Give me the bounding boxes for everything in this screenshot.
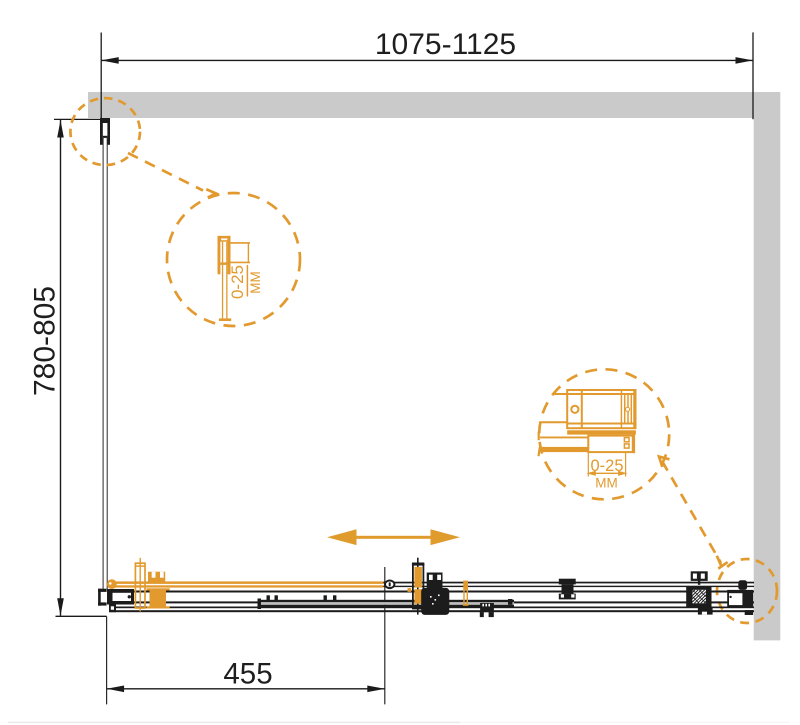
svg-text:MM: MM	[248, 271, 263, 294]
svg-text:780-805: 780-805	[29, 286, 62, 396]
svg-text:0-25: 0-25	[590, 457, 623, 475]
svg-text:455: 455	[223, 658, 272, 691]
svg-text:MM: MM	[595, 476, 618, 491]
svg-text:1075-1125: 1075-1125	[375, 28, 516, 61]
svg-text:0-25: 0-25	[228, 265, 247, 299]
